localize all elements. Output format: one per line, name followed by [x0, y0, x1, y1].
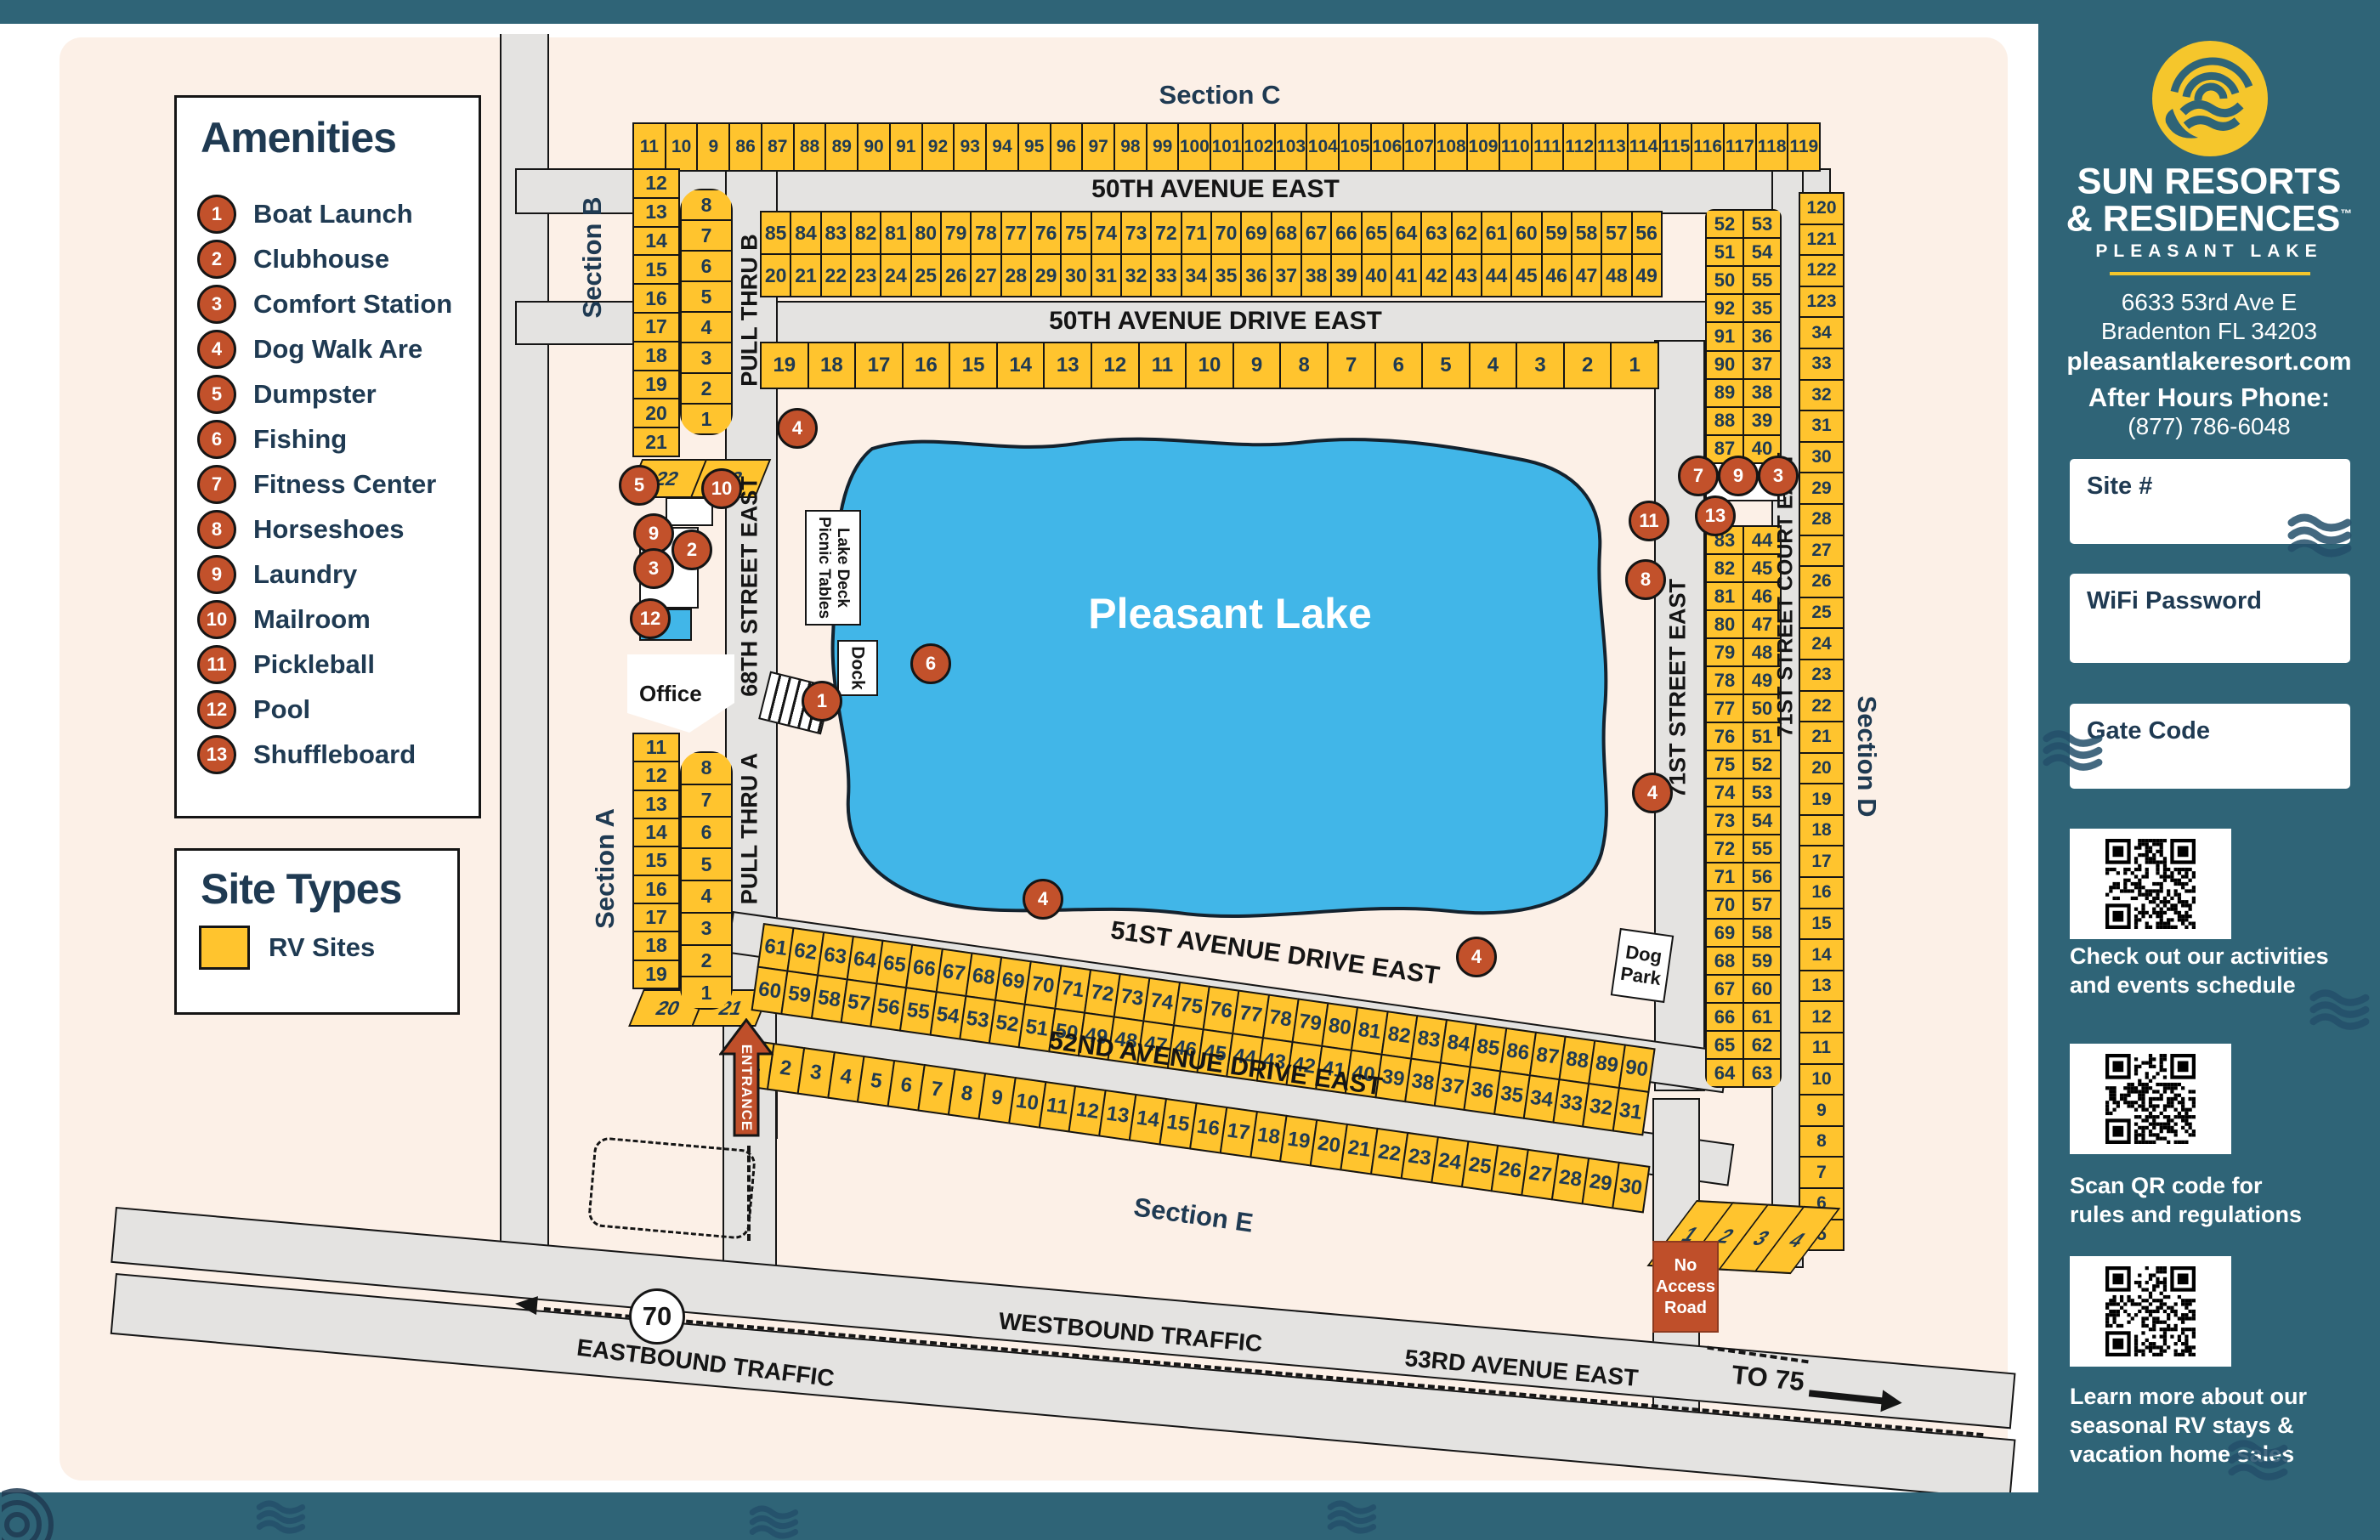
site-51: 51 — [1705, 237, 1744, 267]
site-49: 49 — [1631, 253, 1663, 297]
amenity-label: Dog Walk Are — [253, 334, 422, 365]
activities-qr-code — [2070, 829, 2231, 939]
site-62: 62 — [1451, 211, 1482, 255]
site-87: 87 — [761, 122, 795, 172]
lake-name: Pleasant Lake — [1088, 589, 1372, 638]
street-label-50th-avenue-east: 50TH AVENUE EAST — [1091, 175, 1340, 204]
sidebar-wave-decoration — [2286, 510, 2363, 561]
site-80: 80 — [910, 211, 942, 255]
site-83: 83 — [820, 211, 852, 255]
map-amenity-marker-13: 13 — [1695, 495, 1736, 536]
section-d-outer-column: 1201211221233433323130292827262524232221… — [1799, 192, 1844, 1251]
map-amenity-marker-3: 3 — [1758, 456, 1799, 496]
amenity-number-badge: 10 — [197, 600, 236, 639]
site-66: 66 — [1330, 211, 1362, 255]
site-4: 4 — [680, 311, 733, 343]
site-27: 27 — [1799, 535, 1844, 568]
sales-qr-code — [2070, 1256, 2231, 1367]
site-30: 30 — [1612, 1162, 1650, 1214]
site-10: 10 — [1799, 1063, 1844, 1096]
site-98: 98 — [1113, 122, 1147, 172]
amenity-number-badge: 5 — [197, 375, 236, 414]
site-37: 37 — [1742, 350, 1782, 380]
site-58: 58 — [1742, 918, 1782, 948]
rules-qr-caption: Scan QR code forrules and regulations — [2070, 1171, 2302, 1229]
site-6: 6 — [680, 250, 733, 282]
site-36: 36 — [1240, 253, 1272, 297]
amenity-item-boat-launch: 1Boat Launch — [197, 191, 461, 236]
site-42: 42 — [1420, 253, 1452, 297]
amenity-number-badge: 12 — [197, 690, 236, 729]
site-115: 115 — [1659, 122, 1693, 172]
route-70-number: 70 — [643, 1301, 671, 1332]
site-14: 14 — [1799, 938, 1844, 971]
site-37: 37 — [1271, 253, 1302, 297]
d-mid-left-top: 525150929190898887 — [1705, 209, 1744, 464]
site-91: 91 — [1705, 321, 1744, 351]
road-west-boundary — [500, 34, 549, 1251]
amenity-item-mailroom: 10Mailroom — [197, 597, 461, 642]
site-17: 17 — [854, 342, 904, 389]
amenity-item-horseshoes: 8Horseshoes — [197, 507, 461, 552]
street-label-68th-street-east: 68TH STREET EAST — [737, 476, 763, 697]
site-12: 12 — [1799, 1000, 1844, 1033]
site-20: 20 — [632, 398, 680, 428]
site-12: 12 — [632, 168, 680, 199]
site-9: 9 — [1799, 1094, 1844, 1127]
site-30: 30 — [1799, 441, 1844, 474]
site-78: 78 — [970, 211, 1001, 255]
site-65: 65 — [1361, 211, 1392, 255]
site-72: 72 — [1150, 211, 1181, 255]
site-94: 94 — [985, 122, 1019, 172]
section-c-mid-upper-row: 8584838281807978777675747372717069686766… — [760, 211, 1663, 255]
site-7: 7 — [1799, 1156, 1844, 1189]
site-116: 116 — [1691, 122, 1725, 172]
amenity-label: Comfort Station — [253, 289, 452, 320]
site-69: 69 — [1705, 918, 1744, 948]
site-55: 55 — [1742, 834, 1782, 863]
site-16: 16 — [1799, 876, 1844, 909]
site-3: 3 — [680, 912, 733, 946]
site-66: 66 — [1705, 1002, 1744, 1032]
dock-box: Dock — [837, 640, 878, 696]
site-99: 99 — [1146, 122, 1180, 172]
sidebar-wave-decoration — [2309, 986, 2380, 1033]
site-8: 8 — [680, 751, 733, 785]
top-band — [0, 0, 2380, 24]
site-75: 75 — [1060, 211, 1091, 255]
site-82: 82 — [1705, 553, 1744, 583]
site-7: 7 — [680, 219, 733, 252]
site-89: 89 — [1705, 378, 1744, 408]
site-61: 61 — [1742, 1002, 1782, 1032]
site-34: 34 — [1181, 253, 1212, 297]
section-a-label: Section A — [590, 808, 620, 929]
street-label-pull-thru-a: PULL THRU A — [737, 753, 763, 905]
site-72: 72 — [1705, 834, 1744, 863]
site-52: 52 — [1742, 750, 1782, 779]
site-30: 30 — [1060, 253, 1091, 297]
site-14: 14 — [632, 818, 680, 847]
section-a-outer-column: 111213141516171819 — [632, 733, 680, 989]
brand-subtitle: PLEASANT LAKE — [2095, 241, 2322, 262]
site-19: 19 — [632, 370, 680, 400]
site-100: 100 — [1177, 122, 1211, 172]
amenity-number-badge: 6 — [197, 420, 236, 459]
site-81: 81 — [880, 211, 911, 255]
no-access-label: NoAccessRoad — [1656, 1255, 1715, 1319]
rv-sites-legend-row: RV Sites — [199, 926, 375, 970]
amenity-label: Mailroom — [253, 604, 371, 635]
site-114: 114 — [1627, 122, 1661, 172]
address-line1: 6633 53rd Ave E — [2122, 289, 2298, 316]
amenity-number-badge: 13 — [197, 735, 236, 774]
amenity-item-fitness-center: 7Fitness Center — [197, 461, 461, 507]
amenity-item-clubhouse: 2Clubhouse — [197, 236, 461, 281]
site-19: 19 — [1799, 783, 1844, 816]
site-15: 15 — [949, 342, 998, 389]
amenities-title: Amenities — [201, 113, 396, 162]
site-27: 27 — [970, 253, 1001, 297]
site-119: 119 — [1787, 122, 1821, 172]
site-35: 35 — [1210, 253, 1242, 297]
brand-name-line1: SUN RESORTS — [2077, 161, 2342, 203]
amenities-list: 1Boat Launch2Clubhouse3Comfort Station4D… — [197, 191, 461, 777]
site-9: 9 — [696, 122, 730, 172]
site-2: 2 — [680, 372, 733, 405]
site-63: 63 — [1742, 1058, 1782, 1088]
site-45: 45 — [1510, 253, 1542, 297]
map-amenity-marker-5: 5 — [619, 465, 660, 506]
site-15: 15 — [632, 846, 680, 875]
site-73: 73 — [1705, 806, 1744, 835]
site-67: 67 — [1705, 974, 1744, 1004]
amenity-number-badge: 3 — [197, 285, 236, 324]
site-53: 53 — [1742, 209, 1782, 239]
site-112: 112 — [1562, 122, 1596, 172]
site-61: 61 — [1481, 211, 1512, 255]
site-55: 55 — [1742, 265, 1782, 295]
entrance-arrow: ENTRANCE — [719, 1018, 773, 1139]
office-label: Office — [639, 681, 702, 707]
site-60: 60 — [1742, 974, 1782, 1004]
site-22: 22 — [820, 253, 852, 297]
map-amenity-marker-4: 4 — [777, 408, 818, 449]
section-b-label: Section B — [577, 197, 608, 319]
address-line2: Bradenton FL 34203 — [2101, 318, 2317, 345]
site-39: 39 — [1742, 406, 1782, 436]
amenity-item-fishing: 6Fishing — [197, 416, 461, 461]
map-amenity-marker-3: 3 — [633, 548, 674, 589]
site-71: 71 — [1705, 862, 1744, 892]
site-11: 11 — [632, 733, 680, 762]
amenities-legend-panel: Amenities 1Boat Launch2Clubhouse3Comfort… — [174, 95, 481, 818]
site-21: 21 — [1799, 721, 1844, 754]
site-10: 10 — [1185, 342, 1234, 389]
site-82: 82 — [850, 211, 881, 255]
site-57: 57 — [1601, 211, 1632, 255]
site-71: 71 — [1181, 211, 1212, 255]
site-118: 118 — [1755, 122, 1789, 172]
amenity-item-pickleball: 11Pickleball — [197, 642, 461, 687]
section-c-lakeside-row: 19181716151413121110987654321 — [760, 342, 1659, 389]
sidebar-wave-decoration — [2042, 727, 2113, 774]
site-109: 109 — [1466, 122, 1500, 172]
amenity-number-badge: 9 — [197, 555, 236, 594]
site-92: 92 — [1705, 293, 1744, 323]
site-4: 4 — [680, 880, 733, 914]
site-85: 85 — [760, 211, 791, 255]
map-amenity-marker-7: 7 — [1678, 456, 1719, 496]
site-26: 26 — [1799, 565, 1844, 598]
amenity-item-dumpster: 5Dumpster — [197, 371, 461, 416]
site-52: 52 — [1705, 209, 1744, 239]
site-11: 11 — [1799, 1032, 1844, 1065]
site-56: 56 — [1631, 211, 1663, 255]
site-62: 62 — [1742, 1030, 1782, 1060]
divider-rule — [2110, 272, 2310, 275]
site-48: 48 — [1601, 253, 1632, 297]
site-28: 28 — [1799, 503, 1844, 536]
site-6: 6 — [1374, 342, 1424, 389]
site-32: 32 — [1120, 253, 1152, 297]
map-amenity-marker-11: 11 — [1629, 501, 1669, 541]
site-25: 25 — [910, 253, 942, 297]
site-18: 18 — [632, 931, 680, 960]
site-113: 113 — [1595, 122, 1629, 172]
site-19: 19 — [760, 342, 809, 389]
site-65: 65 — [1705, 1030, 1744, 1060]
no-access-road-sign: NoAccessRoad — [1652, 1241, 1719, 1333]
site-38: 38 — [1742, 378, 1782, 408]
dog-park-label: Dog Park — [1614, 940, 1671, 991]
amenity-item-shuffleboard: 13Shuffleboard — [197, 732, 461, 777]
gate-code-field-label: Gate Code — [2087, 717, 2350, 745]
site-102: 102 — [1242, 122, 1276, 172]
wave-decoration — [1326, 1498, 1385, 1537]
dock-label: Dock — [847, 646, 868, 689]
corner-circles-decoration — [2, 1477, 104, 1540]
site-97: 97 — [1081, 122, 1115, 172]
after-hours-label: After Hours Phone: — [2088, 382, 2330, 413]
site-40: 40 — [1361, 253, 1392, 297]
site-59: 59 — [1541, 211, 1572, 255]
amenity-item-dog-walk-are: 4Dog Walk Are — [197, 326, 461, 371]
site-106: 106 — [1370, 122, 1404, 172]
route-70-shield: 70 — [629, 1288, 685, 1345]
wifi-password-field-label: WiFi Password — [2087, 587, 2350, 615]
site-57: 57 — [1742, 890, 1782, 920]
brand-name-line2: & RESIDENCES™ — [2066, 199, 2353, 241]
site-32: 32 — [1799, 379, 1844, 412]
site-64: 64 — [1705, 1058, 1744, 1088]
site-90: 90 — [1705, 350, 1744, 380]
site-81: 81 — [1705, 581, 1744, 611]
site-14: 14 — [996, 342, 1045, 389]
site-79: 79 — [1705, 637, 1744, 667]
amenity-number-badge: 7 — [197, 465, 236, 504]
site-121: 121 — [1799, 224, 1844, 257]
site-33: 33 — [1799, 348, 1844, 381]
site-91: 91 — [889, 122, 923, 172]
site-63: 63 — [1420, 211, 1452, 255]
site-33: 33 — [1150, 253, 1181, 297]
site-104: 104 — [1306, 122, 1340, 172]
site-18: 18 — [807, 342, 857, 389]
site-35: 35 — [1742, 293, 1782, 323]
lake-deck-label: Lake DeckPicnic Tables — [814, 517, 852, 619]
site-8: 8 — [1799, 1125, 1844, 1158]
amenity-label: Pool — [253, 694, 310, 725]
amenity-label: Laundry — [253, 559, 357, 590]
entrance-lane-line — [747, 1146, 751, 1241]
d-mid-left-bottom: 8382818079787776757473727170696867666564 — [1705, 525, 1744, 1088]
site-86: 86 — [728, 122, 762, 172]
amenity-label: Pickleball — [253, 649, 375, 680]
entrance-turn-loop — [587, 1136, 757, 1240]
site-5: 5 — [680, 847, 733, 881]
site-105: 105 — [1338, 122, 1372, 172]
site-11: 11 — [1138, 342, 1187, 389]
site-58: 58 — [1571, 211, 1602, 255]
website-link[interactable]: pleasantlakeresort.com — [2066, 348, 2351, 377]
site-16: 16 — [902, 342, 951, 389]
pull-thru-b-column: 87654321 — [680, 189, 733, 435]
site-13: 13 — [1799, 970, 1844, 1003]
site-117: 117 — [1723, 122, 1757, 172]
amenity-label: Shuffleboard — [253, 739, 416, 770]
site-2: 2 — [1563, 342, 1612, 389]
site-13: 13 — [1043, 342, 1092, 389]
site-68: 68 — [1705, 946, 1744, 976]
site-7: 7 — [1327, 342, 1376, 389]
site-103: 103 — [1274, 122, 1308, 172]
site-90: 90 — [857, 122, 891, 172]
entrance-label: ENTRANCE — [738, 1045, 755, 1131]
resort-map-page: Pleasant Lake 11109868788899091929394959… — [0, 0, 2380, 1540]
site-8: 8 — [680, 189, 733, 221]
site-2: 2 — [680, 944, 733, 978]
trademark-symbol: ™ — [2340, 207, 2352, 220]
site-5: 5 — [1421, 342, 1470, 389]
map-amenity-marker-10: 10 — [701, 468, 742, 509]
site-16: 16 — [632, 875, 680, 904]
amenity-label: Horseshoes — [253, 514, 404, 545]
site-50: 50 — [1705, 265, 1744, 295]
site-15: 15 — [1799, 908, 1844, 941]
sun-resorts-logo-icon — [2149, 37, 2271, 160]
site-44: 44 — [1481, 253, 1512, 297]
site-88: 88 — [1705, 406, 1744, 436]
site-39: 39 — [1330, 253, 1362, 297]
sidebar-wave-decoration — [2227, 1436, 2298, 1484]
site-23: 23 — [850, 253, 881, 297]
site-3: 3 — [680, 342, 733, 374]
site-12: 12 — [632, 761, 680, 790]
site-29: 29 — [1799, 472, 1844, 505]
site-79: 79 — [940, 211, 972, 255]
map-amenity-marker-12: 12 — [630, 598, 671, 639]
site-77: 77 — [1705, 694, 1744, 723]
site-46: 46 — [1541, 253, 1572, 297]
site-22: 22 — [1799, 690, 1844, 723]
site-54: 54 — [1742, 237, 1782, 267]
site-13: 13 — [632, 790, 680, 819]
amenity-number-badge: 1 — [197, 195, 236, 234]
wifi-password-field[interactable]: WiFi Password — [2070, 574, 2350, 663]
site-10: 10 — [665, 122, 699, 172]
amenity-label: Dumpster — [253, 379, 377, 410]
site-24: 24 — [1799, 627, 1844, 660]
site-34: 34 — [1799, 316, 1844, 349]
section-d-label: Section D — [1851, 696, 1882, 818]
site-28: 28 — [1000, 253, 1032, 297]
site-14: 14 — [632, 226, 680, 257]
site-74: 74 — [1705, 778, 1744, 807]
street-label-pull-thru-b: PULL THRU B — [737, 234, 763, 387]
amenity-label: Fitness Center — [253, 469, 436, 500]
amenity-number-badge: 8 — [197, 510, 236, 549]
wave-decoration — [748, 1503, 807, 1540]
site-59: 59 — [1742, 946, 1782, 976]
amenity-item-comfort-station: 3Comfort Station — [197, 281, 461, 326]
site-24: 24 — [880, 253, 911, 297]
wave-decoration — [255, 1498, 314, 1537]
site-13: 13 — [632, 197, 680, 228]
section-b-outer-column: 12131415161718192021 — [632, 168, 680, 457]
site-41: 41 — [1391, 253, 1422, 297]
rv-site-color-swatch — [199, 926, 250, 970]
site-80: 80 — [1705, 609, 1744, 639]
site-9: 9 — [1232, 342, 1282, 389]
site-110: 110 — [1499, 122, 1533, 172]
site-15: 15 — [632, 254, 680, 285]
site-21: 21 — [632, 427, 680, 457]
street-label-71st-street-east: 71ST STREET EAST — [1665, 579, 1691, 798]
map-amenity-marker-8: 8 — [1625, 559, 1666, 600]
amenity-number-badge: 2 — [197, 240, 236, 279]
site-29: 29 — [1030, 253, 1062, 297]
site-111: 111 — [1531, 122, 1565, 172]
site-20: 20 — [1799, 752, 1844, 785]
site-1: 1 — [1610, 342, 1659, 389]
site-95: 95 — [1017, 122, 1051, 172]
site-93: 93 — [953, 122, 987, 172]
section-c-label: Section C — [1159, 80, 1281, 110]
after-hours-phone: (877) 786-6048 — [2128, 413, 2290, 440]
site-122: 122 — [1799, 254, 1844, 287]
site-19: 19 — [632, 960, 680, 989]
site-96: 96 — [1050, 122, 1084, 172]
site-43: 43 — [1451, 253, 1482, 297]
site-31: 31 — [1799, 410, 1844, 443]
site-17: 17 — [1799, 845, 1844, 878]
amenity-number-badge: 11 — [197, 645, 236, 684]
site-31: 31 — [1091, 253, 1122, 297]
site-8: 8 — [1279, 342, 1329, 389]
map-amenity-marker-1: 1 — [802, 681, 842, 722]
site-73: 73 — [1120, 211, 1152, 255]
site-16: 16 — [632, 283, 680, 314]
site-107: 107 — [1402, 122, 1436, 172]
site-47: 47 — [1571, 253, 1602, 297]
street-label-50th-avenue-drive-east: 50TH AVENUE DRIVE EAST — [1049, 307, 1382, 336]
site-56: 56 — [1742, 862, 1782, 892]
site-120: 120 — [1799, 192, 1844, 225]
site-78: 78 — [1705, 665, 1744, 695]
site-types-title: Site Types — [201, 864, 401, 914]
